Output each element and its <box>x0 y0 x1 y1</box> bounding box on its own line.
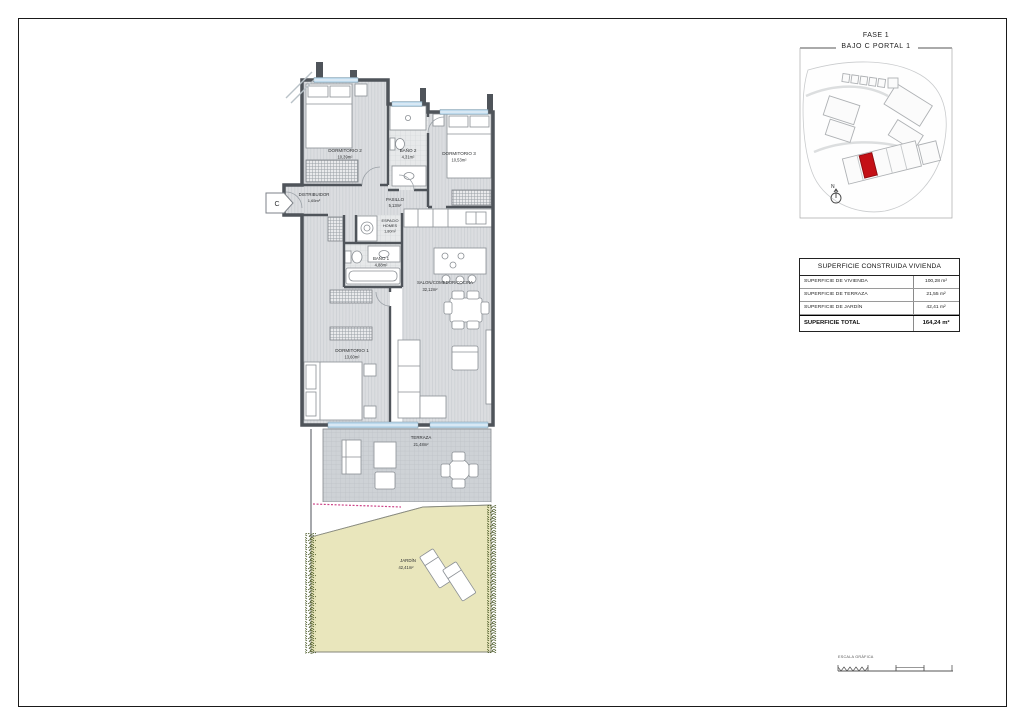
label-terraza: TERRAZA <box>411 435 432 440</box>
label-dorm1: DORMITORIO 1 <box>335 348 369 353</box>
label-bano2: BAÑO 2 <box>400 147 417 153</box>
north-label: N <box>831 184 835 190</box>
dorm2-wardrobe <box>306 160 358 182</box>
total-value: 164,24 m² <box>913 316 959 331</box>
table-row: SUPERFICIE DE VIVIENDA 100,28 m² <box>800 276 959 289</box>
hall-closet <box>328 217 344 241</box>
area-pasillo: 5,13m² <box>389 203 402 208</box>
table-row: SUPERFICIE DE JARDÍN 42,41 m² <box>800 302 959 315</box>
label-pasillo: PASILLO <box>386 197 405 202</box>
row-label: SUPERFICIE DE TERRAZA <box>804 289 868 302</box>
surface-table-body: SUPERFICIE DE VIVIENDA 100,28 m² SUPERFI… <box>800 276 959 331</box>
area-terraza: 21,48m² <box>413 442 429 447</box>
label-salon: SALON/COMEDOR/COCINA <box>417 280 473 285</box>
site-map: N <box>800 48 952 218</box>
area-bano1: 4,88m² <box>375 263 388 268</box>
entrance-letter: C <box>274 201 279 208</box>
area-salon: 32,12m² <box>422 287 438 292</box>
total-label: SUPERFICIE TOTAL <box>804 316 860 331</box>
area-bano2: 4,31m² <box>402 155 415 160</box>
vegetation-right <box>487 505 497 653</box>
espacio-appliances <box>357 216 377 241</box>
label-dorm3: DORMITORIO 3 <box>442 151 476 156</box>
dorm1-wardrobe-1 <box>330 290 372 303</box>
scale-bar <box>838 665 953 671</box>
row-value: 21,55 m² <box>913 289 959 302</box>
label-jardin: JARDÍN <box>400 558 416 563</box>
floor-plan-svg: C DORMITORIO 2 10,39m² BAÑO 2 4,31m² DOR… <box>0 0 1024 724</box>
dorm1-wardrobe-2 <box>330 327 372 340</box>
vegetation-left <box>305 533 316 654</box>
area-distribuidor: 1,65m² <box>308 198 321 203</box>
label-dorm2: DORMITORIO 2 <box>328 148 362 153</box>
table-total-row: SUPERFICIE TOTAL 164,24 m² <box>800 315 959 331</box>
row-label: SUPERFICIE DE VIVIENDA <box>804 276 868 289</box>
apartment-plan: C DORMITORIO 2 10,39m² BAÑO 2 4,31m² DOR… <box>266 62 497 654</box>
phase-title: FASE 1 <box>800 32 952 39</box>
label-espacio-2: HOMES <box>383 223 398 228</box>
area-espacio: 1,80m² <box>384 230 397 234</box>
label-distribuidor: DISTRIBUIDOR <box>299 192 330 197</box>
row-label: SUPERFICIE DE JARDÍN <box>804 302 863 315</box>
row-value: 100,28 m² <box>913 276 959 289</box>
area-dorm2: 10,39m² <box>337 155 353 160</box>
scale-caption: ESCALA GRÁFICA <box>838 655 874 659</box>
unit-title: BAJO C PORTAL 1 <box>800 43 952 50</box>
area-dorm3: 10,53m² <box>451 158 467 163</box>
surface-table: SUPERFICIE CONSTRUIDA VIVIENDA SUPERFICI… <box>799 258 960 332</box>
area-jardin: 42,41m² <box>398 565 414 570</box>
label-bano1: BAÑO 1 <box>373 256 390 261</box>
dorm3-wardrobe <box>452 190 491 205</box>
table-row: SUPERFICIE DE TERRAZA 21,55 m² <box>800 289 959 302</box>
area-dorm1: 13,60m² <box>344 355 360 360</box>
row-value: 42,41 m² <box>913 302 959 315</box>
surface-table-header: SUPERFICIE CONSTRUIDA VIVIENDA <box>800 259 959 276</box>
